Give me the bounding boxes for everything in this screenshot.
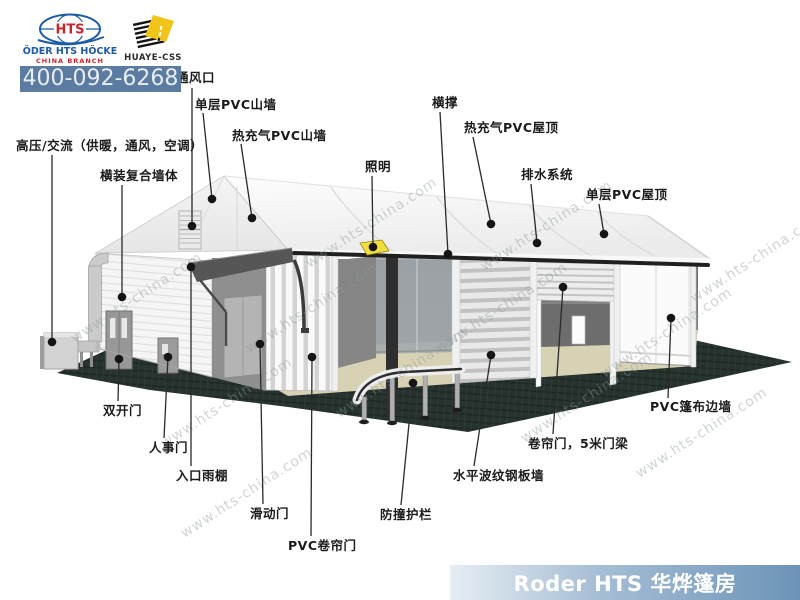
logo-roder-line2: CHINA BRANCH xyxy=(36,57,104,65)
callout-line-corrugated-wall xyxy=(474,355,491,466)
callout-line-inflated-pvc-roof xyxy=(473,137,491,224)
callout-label-crash-barrier: 防撞护栏 xyxy=(380,507,432,522)
callout-label-entrance-canopy: 入口雨棚 xyxy=(176,468,228,483)
callout-dot-inflated-pvc-roof xyxy=(487,220,496,229)
callout-line-pvc-roller-curtain xyxy=(311,357,312,536)
phone-banner: 400-092-6268 xyxy=(20,66,181,92)
callout-line-sliding-door xyxy=(260,344,263,504)
callout-line-drainage xyxy=(531,184,537,243)
callout-label-inflated-pvc-gable: 热充气PVC山墙 xyxy=(232,128,327,143)
callout-dot-roller-door-5m xyxy=(559,283,568,292)
callout-dot-composite-wall xyxy=(118,293,127,302)
callout-dot-personnel-door xyxy=(164,353,173,362)
callout-dot-double-door xyxy=(115,355,124,364)
callout-dot-pvc-roller-curtain xyxy=(308,353,317,362)
callout-dot-sliding-door xyxy=(256,340,265,349)
callout-label-single-pvc-roof: 单层PVC屋顶 xyxy=(586,187,668,202)
callout-dot-single-pvc-roof xyxy=(600,230,609,239)
callout-dot-single-pvc-gable xyxy=(208,195,217,204)
callout-dot-vent xyxy=(188,222,197,231)
callout-dot-inflated-pvc-gable xyxy=(248,214,257,223)
callout-line-cross-brace xyxy=(440,112,448,254)
logo-hts-text: HTS xyxy=(55,23,84,38)
huaye-css-logo: HUAYE-CSS xyxy=(122,12,184,64)
logo-roder-line1: RÖDER HTS HÖCKER xyxy=(22,46,118,57)
callout-label-lighting: 照明 xyxy=(365,159,391,174)
roder-hts-hocker-logo: HTS RÖDER HTS HÖCKER CHINA BRANCH xyxy=(22,12,118,66)
callout-label-hvac: 高压/交流（供暖，通风，空调） xyxy=(16,138,203,153)
callout-label-single-pvc-gable: 单层PVC山墙 xyxy=(195,97,277,112)
callout-dot-lighting xyxy=(369,243,378,252)
callout-label-double-door: 双开门 xyxy=(103,403,142,418)
callout-line-inflated-pvc-gable xyxy=(241,144,252,218)
callout-dot-pvc-sidewall xyxy=(667,314,676,323)
callout-line-pvc-sidewall xyxy=(668,318,671,398)
callout-line-roller-door-5m xyxy=(553,287,563,434)
tent-infographic: www.hts-china.comwww.hts-china.comwww.ht… xyxy=(0,0,800,600)
huaye-yellow-icon xyxy=(145,15,174,42)
callout-line-single-pvc-roof xyxy=(599,204,604,234)
callout-line-lighting xyxy=(372,176,373,247)
callout-label-vent: 通风口 xyxy=(176,70,215,85)
callout-label-cross-brace: 横撑 xyxy=(432,95,458,110)
callout-dot-crash-barrier xyxy=(409,379,418,388)
callout-label-inflated-pvc-roof: 热充气PVC屋顶 xyxy=(464,120,559,135)
phone-number: 400-092-6268 xyxy=(23,66,179,92)
callout-label-corrugated-wall: 水平波纹钢板墙 xyxy=(453,468,544,483)
callout-label-sliding-door: 滑动门 xyxy=(250,506,289,521)
callout-label-pvc-roller-curtain: PVC卷帘门 xyxy=(288,538,357,553)
callout-line-single-pvc-gable xyxy=(203,113,212,199)
callout-dot-drainage xyxy=(533,239,542,248)
callout-dot-entrance-canopy xyxy=(187,263,196,272)
callout-label-pvc-sidewall: PVC篷布边墙 xyxy=(650,399,732,414)
callout-line-crash-barrier xyxy=(401,383,413,505)
callout-label-personnel-door: 人事门 xyxy=(149,440,188,455)
callout-label-drainage: 排水系统 xyxy=(521,167,573,182)
callout-dot-hvac xyxy=(48,338,57,347)
huaye-label: HUAYE-CSS xyxy=(124,53,182,63)
callout-dot-cross-brace xyxy=(444,250,453,259)
callout-line-personnel-door xyxy=(164,357,168,438)
callout-label-roller-door-5m: 卷帘门，5米门梁 xyxy=(528,436,628,451)
callout-label-composite-wall: 横装复合墙体 xyxy=(100,168,178,183)
footer-banner-text: Roder HTS 华烨篷房 xyxy=(514,568,737,598)
callout-dot-corrugated-wall xyxy=(487,351,496,360)
callout-line-double-door xyxy=(118,359,119,401)
footer-banner: Roder HTS 华烨篷房 xyxy=(450,565,800,600)
